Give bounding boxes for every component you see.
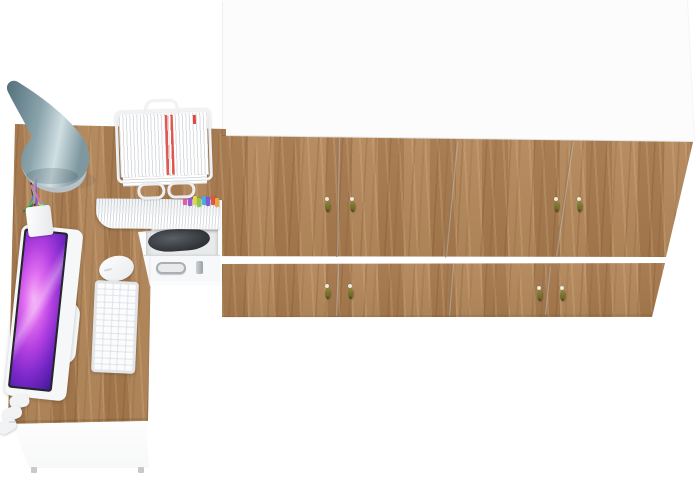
keyboard-key [120,303,127,308]
keyboard-key [105,302,112,307]
keyboard-key [120,297,127,302]
keyboard-key [129,285,136,290]
keyboard-key [119,340,126,346]
keyboard-key [104,327,111,333]
pen-cup[interactable] [25,205,53,238]
keyboard-key [111,346,118,352]
keyboard-key [95,345,102,351]
keyboard-key [97,296,104,301]
keyboard-key [102,352,109,358]
keyboard-key [120,315,127,321]
keyboard-key [105,290,112,295]
keyboard-key [118,365,125,371]
keyboard-key [97,308,104,314]
keyboard-key [112,315,119,321]
keyboard-key [113,296,120,301]
keyboard-key [113,290,120,295]
keyboard-key [95,351,102,357]
scene [0,0,700,482]
keyboard-key [126,353,133,359]
keyboard-key [125,365,132,371]
keyboard-key [104,308,111,314]
keyboard-key [110,358,117,364]
keyboard-key [103,339,110,345]
keyboard-key [127,322,134,328]
keyboard-key [128,309,135,315]
keyboard-key [127,334,134,340]
keyboard-key [111,334,118,340]
keyboard-key [104,321,111,327]
keyboard-key [102,358,109,364]
keyboard-key [118,353,125,359]
keyboard-key [102,364,109,370]
keyboard-key [111,327,118,333]
keyboard-key [110,352,117,358]
edge-line [222,256,666,257]
keyboard-key [94,364,101,370]
keyboard-key [113,284,120,289]
keyboard-key [112,309,119,315]
edge-line [222,2,223,136]
keyboard-key [96,320,103,326]
keyboard-key [128,303,135,308]
keyboard-key [126,347,133,353]
keyboard-key [128,297,135,302]
keyboard-key [103,346,110,352]
keyboard-key [111,340,118,346]
keyboard-key [112,302,119,307]
pen-area [0,0,700,482]
keyboard-key [129,291,136,296]
keyboard-key [127,328,134,334]
keyboard-key [112,321,119,327]
keyboard-key [105,296,112,301]
keyboard-key [104,315,111,321]
keyboard-key [120,309,127,315]
keyboard-key [119,334,126,340]
keyboard-key [127,316,134,322]
keyboard-key [94,358,101,364]
keyboard[interactable] [91,280,139,374]
keyboard-key [121,290,128,295]
keyboard-key [126,340,133,346]
keyboard-key [96,327,103,333]
keyboard-key [121,284,128,289]
keyboard-key [118,359,125,365]
keyboard-key [97,302,104,307]
keyboard-key [119,321,126,327]
keyboard-key [95,333,102,339]
keyboard-key [110,365,117,371]
keyboard-key [98,283,105,288]
keyboard-key [97,289,104,294]
keyboard-key [118,346,125,352]
keyboard-key [119,328,126,334]
keyboard-key [126,359,133,365]
keyboard-key [105,284,112,289]
keyboard-key [103,333,110,339]
keyboard-key [96,314,103,320]
keyboard-key [95,339,102,345]
